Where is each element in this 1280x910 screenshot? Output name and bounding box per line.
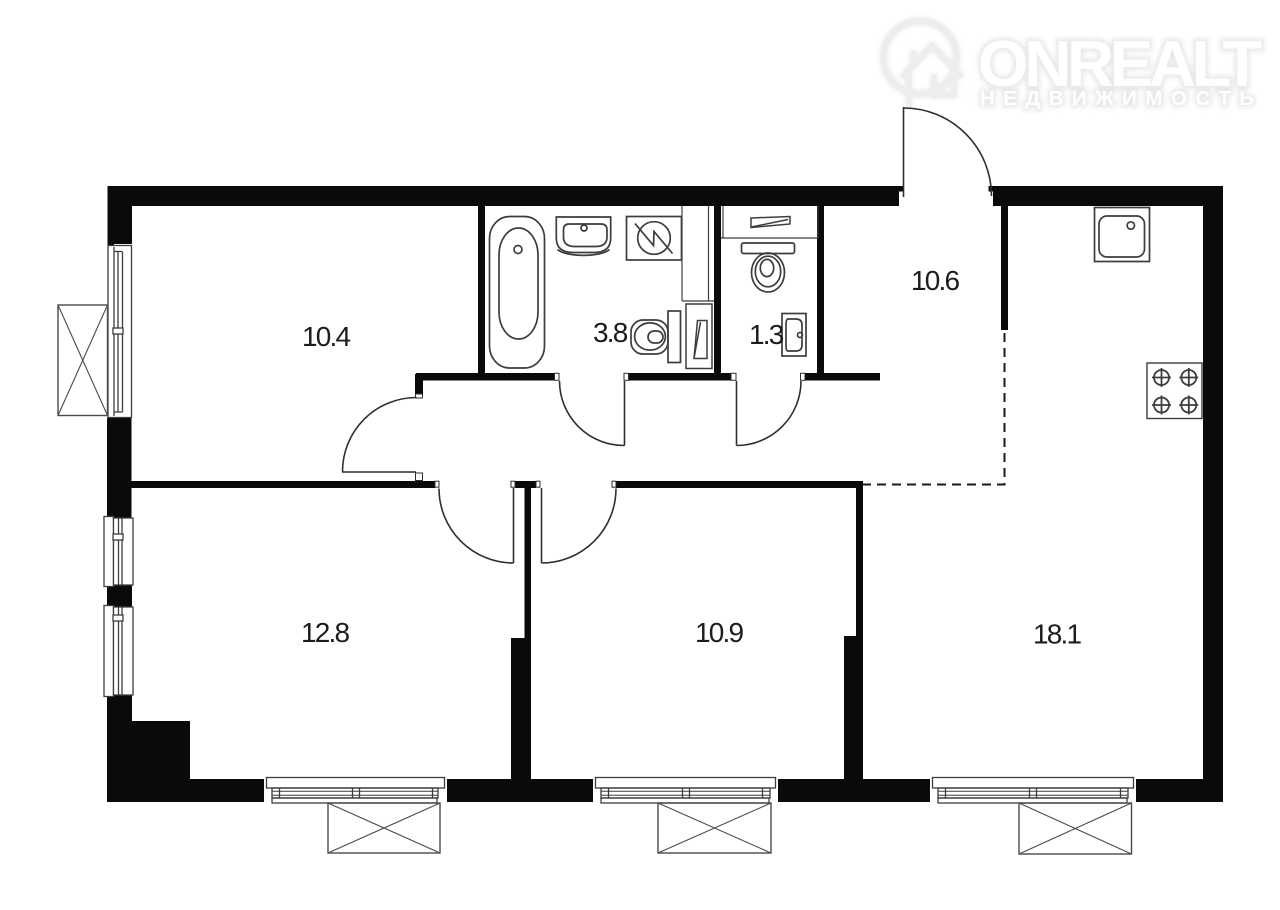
svg-text:10.9: 10.9 — [695, 617, 744, 648]
svg-text:10.4: 10.4 — [302, 321, 351, 352]
svg-text:18.1: 18.1 — [1033, 619, 1082, 650]
svg-text:10.6: 10.6 — [911, 265, 960, 296]
svg-text:1.3: 1.3 — [749, 319, 784, 350]
svg-text:12.8: 12.8 — [301, 617, 350, 648]
svg-text:НЕДВИЖИМОСТЬ: НЕДВИЖИМОСТЬ — [980, 87, 1262, 110]
svg-text:3.8: 3.8 — [593, 317, 628, 348]
